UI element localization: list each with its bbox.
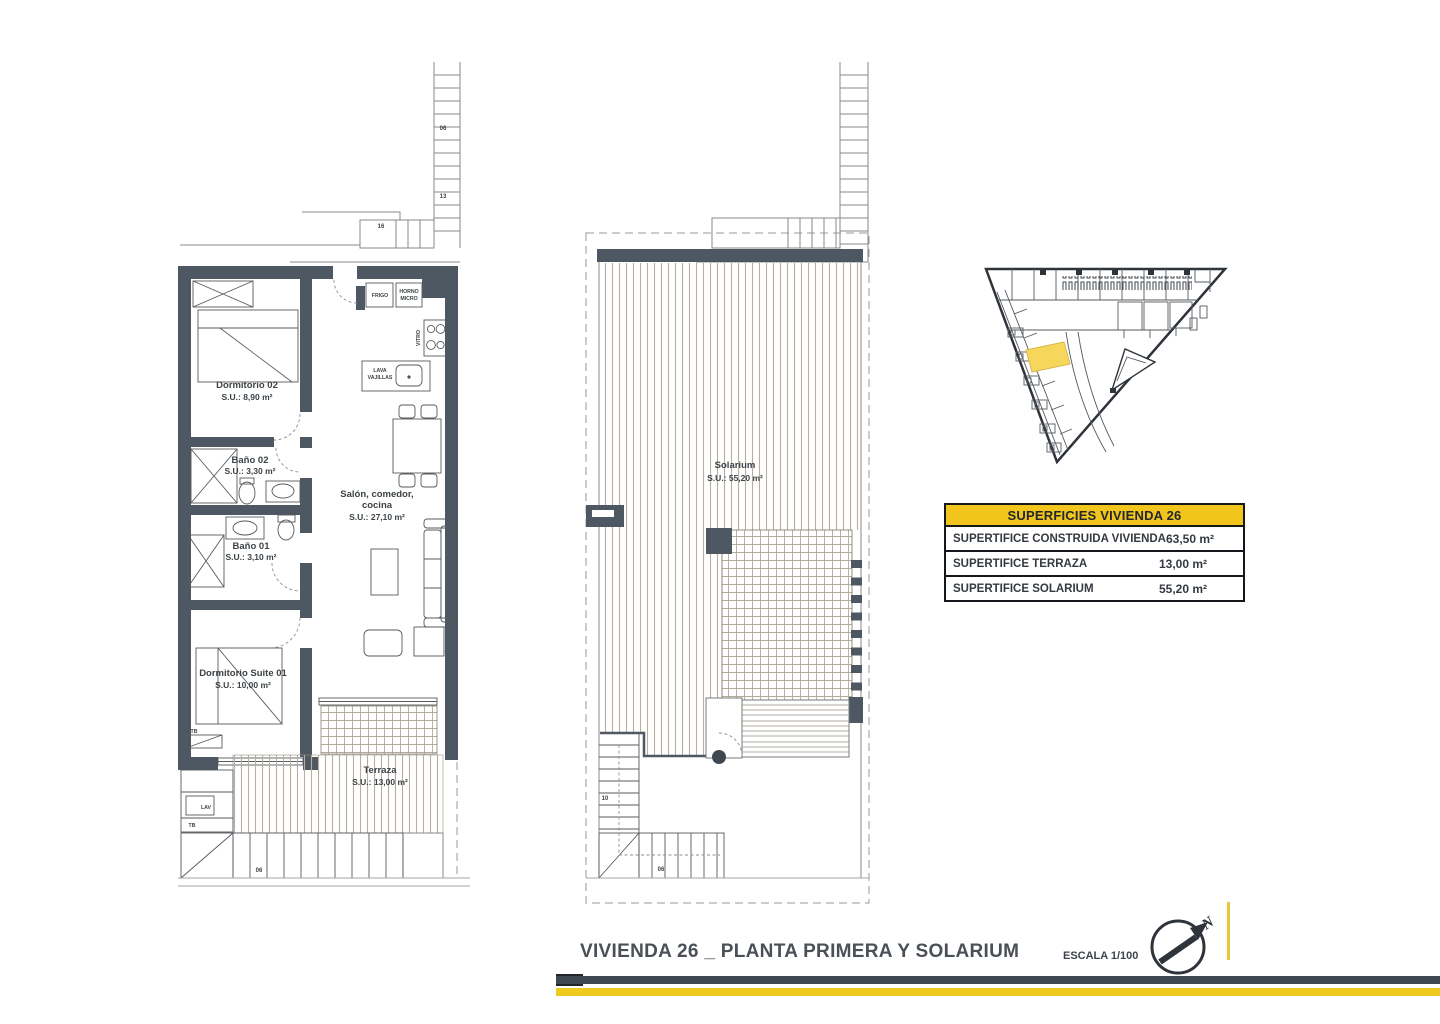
site-plan [986, 269, 1225, 462]
kitchen-label-oven: HORNO [399, 289, 418, 295]
area-row-label: SUPERTIFICE TERRAZA [946, 558, 1159, 570]
room-area-dormitorio02: S.U.: 8,90 m² [221, 392, 272, 402]
stair-number: 06 [256, 868, 263, 874]
room-area-bano02: S.U.: 3,30 m² [224, 466, 275, 476]
areas-table-row: SUPERTIFICE TERRAZA 13,00 m² [946, 552, 1243, 577]
door-swings [270, 280, 357, 648]
kitchen-label-dishwasher: VAJILLAS [368, 375, 393, 381]
first-floor-plan: 06 13 16 [178, 62, 470, 886]
room-label-salon-2: cocina [362, 500, 393, 511]
room-area-bano01: S.U.: 3,10 m² [225, 552, 276, 562]
area-row-label: SUPERTIFICE SOLARIUM [946, 583, 1159, 595]
solarium-plan: 10 06 Solarium S.U.: 55,20 m² [586, 62, 869, 903]
room-label-suite01: Dormitorio Suite 01 [199, 668, 287, 679]
sheet-title: VIVIENDA 26 _ PLANTA PRIMERA Y SOLARIUM [580, 941, 1019, 963]
tb-label: TB [189, 823, 196, 829]
room-label-dormitorio02: Dormitorio 02 [216, 380, 278, 391]
living-furniture [364, 405, 454, 656]
room-area-suite01: S.U.: 10,00 m² [215, 680, 271, 690]
stair-number: 16 [378, 224, 385, 230]
terrace [233, 706, 443, 878]
stair-number: 13 [440, 194, 447, 200]
areas-table-header: SUPERFICIES VIVIENDA 26 [946, 505, 1243, 527]
kitchen-label-hob: VITRO [416, 330, 422, 346]
room-label-bano01: Baño 01 [233, 541, 271, 552]
room-area-terraza: S.U.: 13,00 m² [352, 777, 408, 787]
kitchen-label-fridge-area: LAVA [373, 368, 387, 374]
area-row-label: SUPERTIFICE CONSTRUIDA VIVIENDA [946, 533, 1166, 545]
areas-table: SUPERFICIES VIVIENDA 26 SUPERTIFICE CONS… [944, 503, 1245, 602]
room-label-solarium: Solarium [715, 460, 756, 471]
footer-bar-yellow [556, 988, 1440, 996]
kitchen-fixtures: LAVA VAJILLAS FRIGO HORNO MICRO VITRO [362, 283, 446, 391]
room-label-terraza: Terraza [363, 765, 397, 776]
exterior-stair-upper-left: 06 13 16 [180, 62, 460, 262]
room-area-solarium: S.U.: 55,20 m² [707, 473, 763, 483]
louver-ends [851, 560, 862, 691]
exterior-stair-upper-mid [696, 62, 868, 262]
yellow-accent-line [1227, 902, 1230, 960]
room-label-bano02: Baño 02 [232, 455, 269, 466]
area-row-value: 63,50 m² [1166, 532, 1243, 546]
washer-label: LAV [201, 805, 212, 811]
tb-label: TB [191, 729, 198, 735]
room-label-salon-1: Salón, comedor, [340, 489, 413, 500]
stair-number: 06 [658, 867, 665, 873]
north-arrow: N [1152, 913, 1218, 973]
areas-table-row: SUPERTIFICE SOLARIUM 55,20 m² [946, 577, 1243, 600]
area-row-value: 55,20 m² [1159, 582, 1243, 596]
bedroom2-furniture [193, 281, 298, 382]
sheet-scale: ESCALA 1/100 [1063, 950, 1138, 962]
kitchen-label-micro: MICRO [400, 296, 417, 302]
room-area-salon: S.U.: 27,10 m² [349, 512, 405, 522]
area-row-value: 13,00 m² [1159, 557, 1243, 571]
blueprint-page: 06 13 16 [0, 0, 1440, 1024]
kitchen-label-fridge: FRIGO [372, 293, 388, 299]
stair-number: 10 [602, 796, 609, 802]
stair-number: 06 [440, 126, 447, 132]
areas-table-row: SUPERTIFICE CONSTRUIDA VIVIENDA 63,50 m² [946, 527, 1243, 552]
footer-bar-dark [556, 976, 1440, 984]
suite-furniture: TB [186, 648, 282, 748]
